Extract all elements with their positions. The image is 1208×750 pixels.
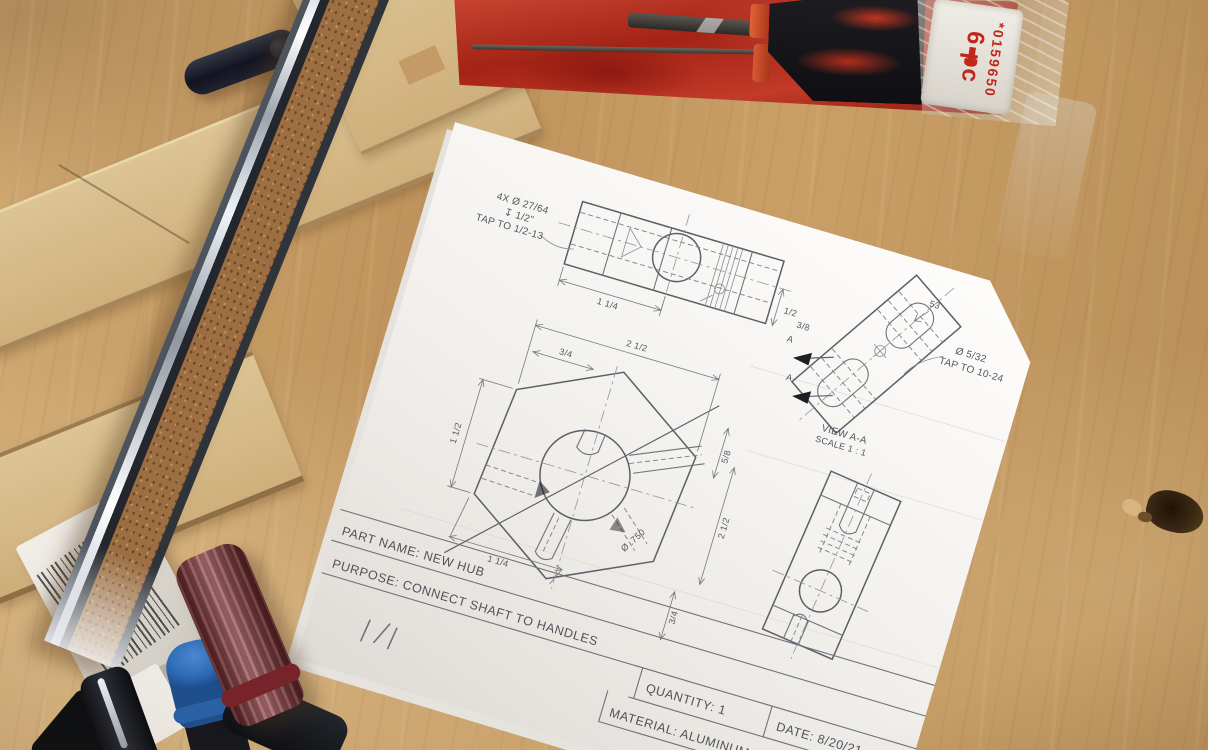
quantity: QUANTITY: 1 (644, 681, 728, 718)
end-view (740, 446, 923, 687)
section-letter-1: A (786, 333, 795, 344)
dim-half: 1/2 (783, 305, 799, 318)
dim-height: 1 1/2 (448, 421, 464, 444)
piece-count: ➡ 6 pc (913, 5, 1030, 109)
dim-small: 3/8 (795, 320, 811, 333)
file-ferrule (749, 4, 768, 39)
dim-right-2: 2 1/2 (716, 516, 732, 539)
date: DATE: 8/20/21 (775, 720, 864, 750)
dim-flat: 3/4 (558, 346, 574, 359)
tapped-hole-callout: 4X Ø 27/64 ↧ 1/2" TAP TO 1/2-13 (474, 187, 552, 242)
workbench-photo: 1 1/4 1/2 4X Ø 27/64 ↧ 1/2" TAP TO 1/2-1… (0, 0, 1208, 750)
pencil-marks (361, 618, 398, 650)
dim-width: 1 1/4 (596, 296, 619, 312)
package-label: ➡ 6 pc *0159650 (920, 0, 1024, 116)
dim-hex-width: 2 1/2 (625, 338, 648, 354)
